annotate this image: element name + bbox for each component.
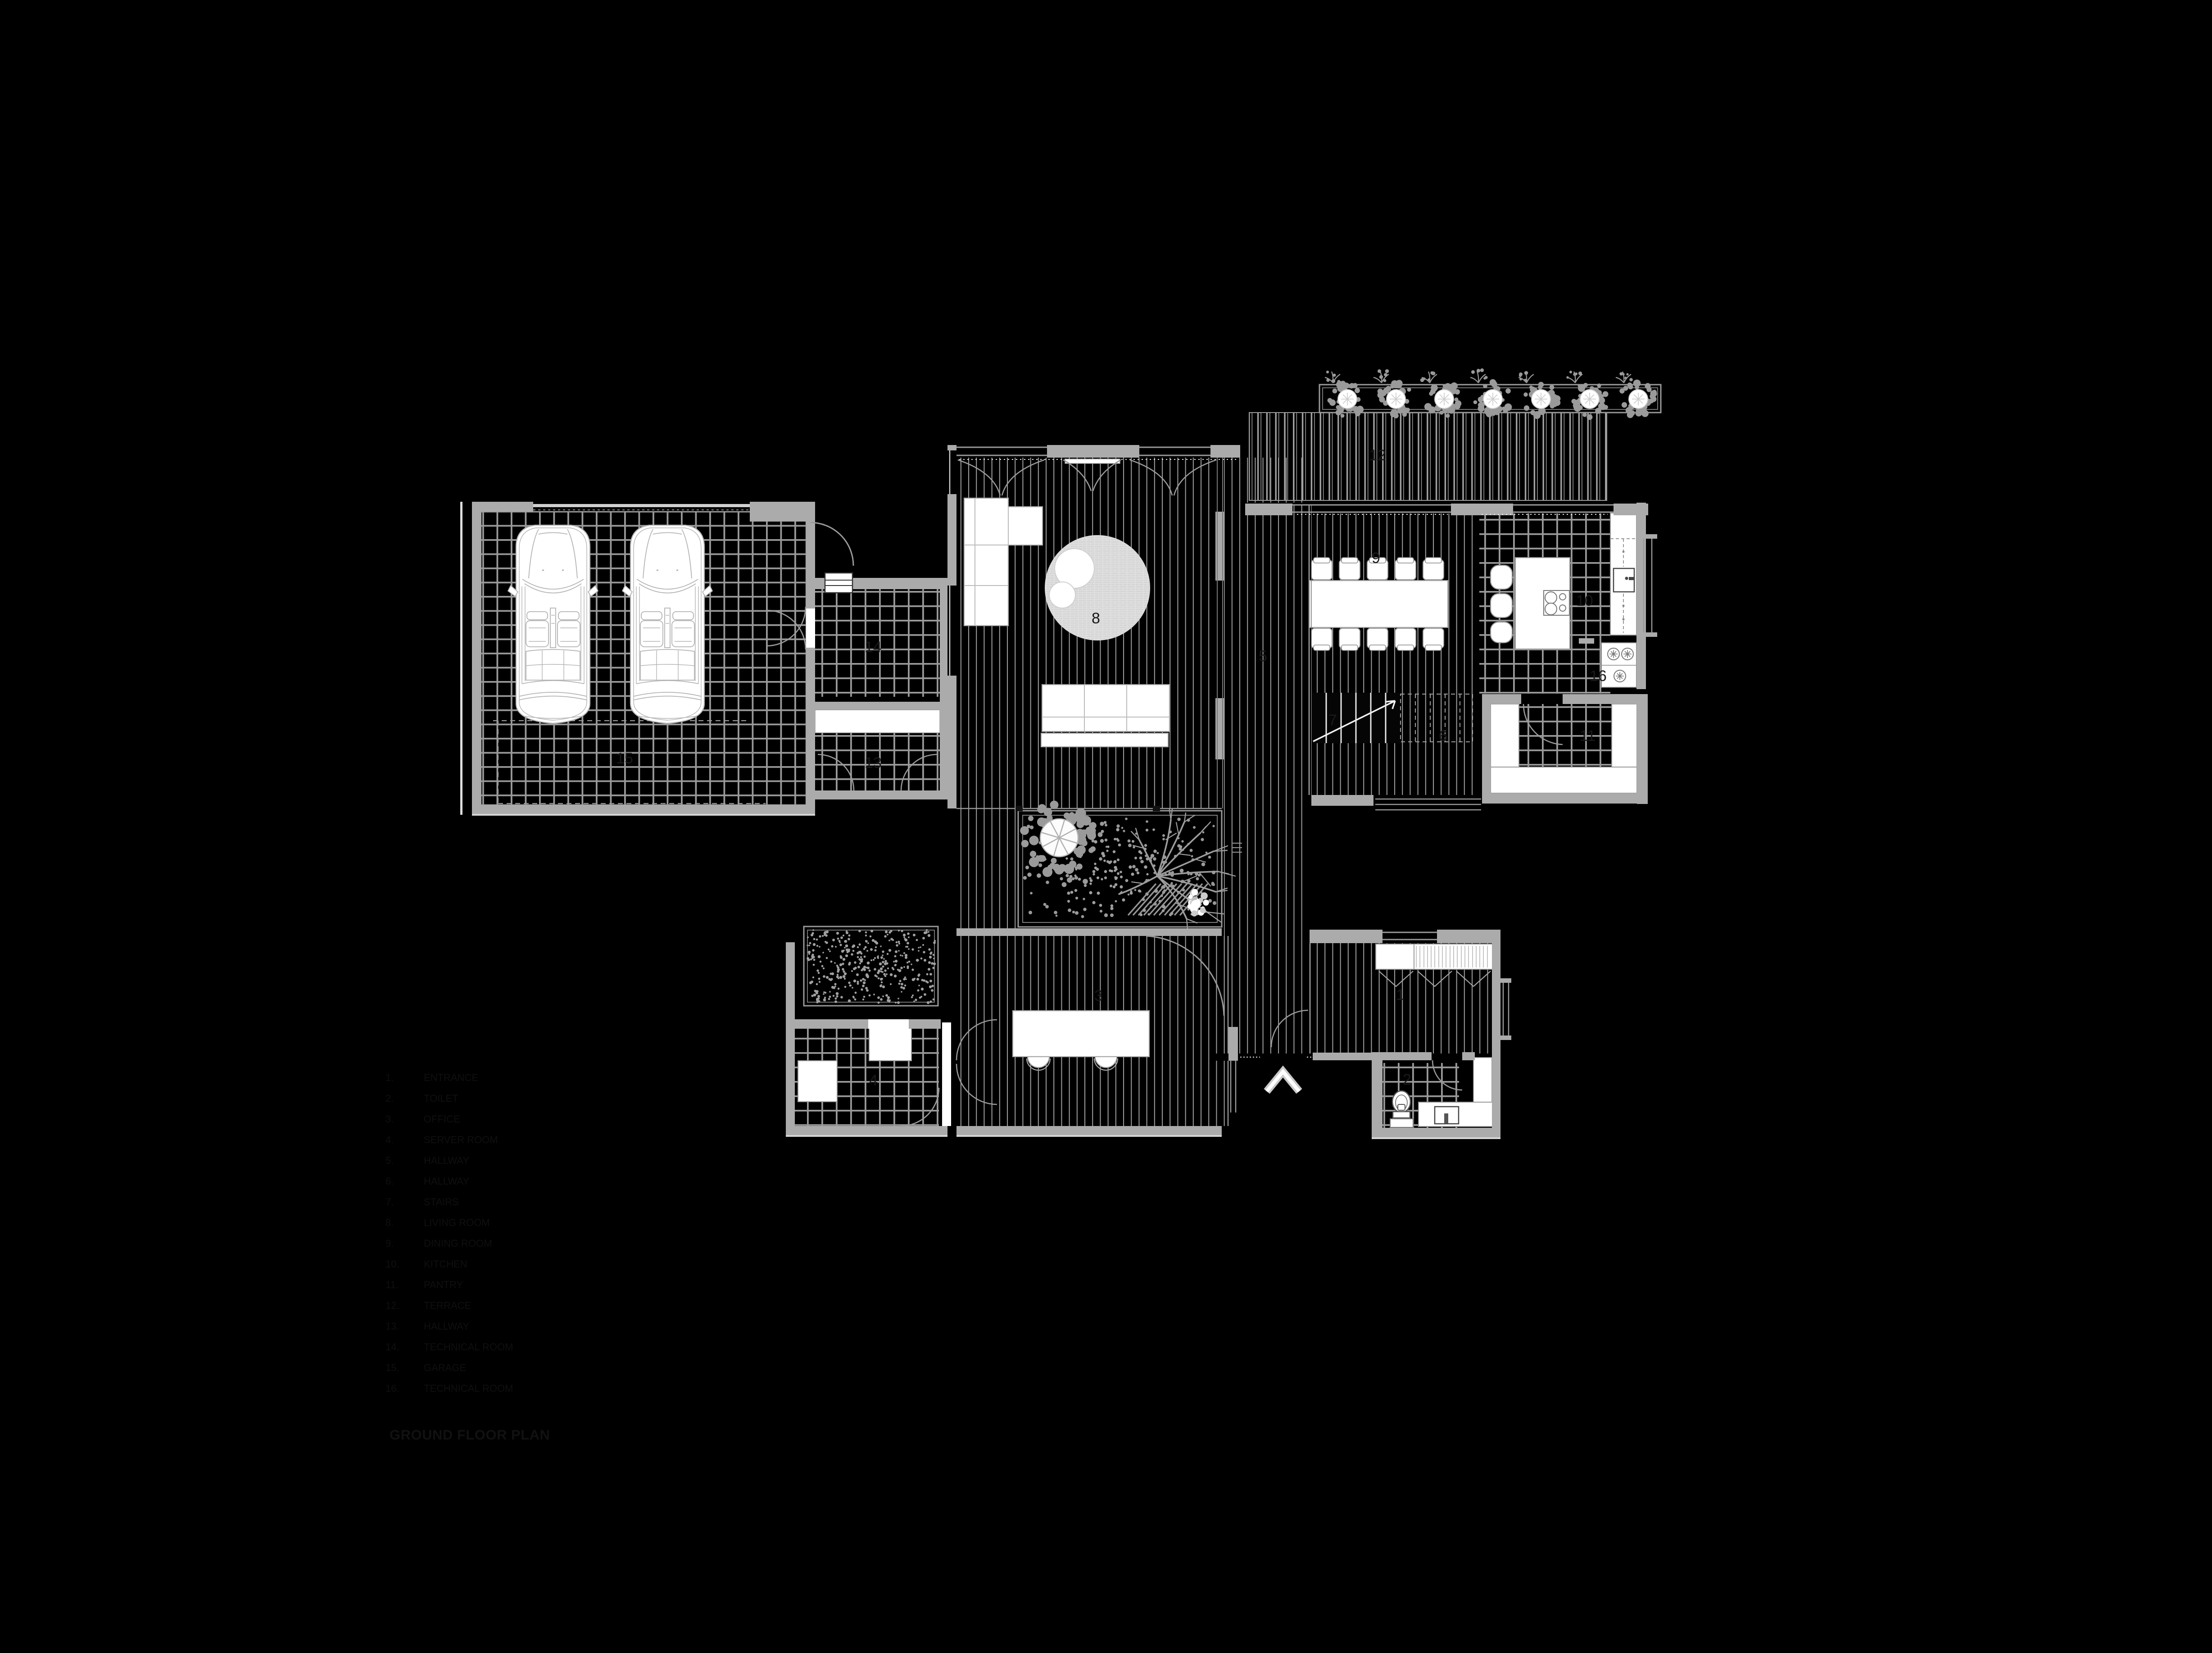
svg-text:14.: 14. [385, 1341, 399, 1353]
svg-text:HALLWAY: HALLWAY [424, 1155, 469, 1166]
svg-text:5.: 5. [385, 1155, 394, 1166]
svg-text:9.: 9. [385, 1238, 394, 1249]
svg-text:ENTRANCE: ENTRANCE [424, 1072, 478, 1083]
svg-text:STAIRS: STAIRS [424, 1196, 459, 1208]
svg-text:1: 1 [1396, 986, 1405, 1004]
svg-text:10: 10 [1576, 592, 1593, 609]
svg-text:TERRACE: TERRACE [424, 1300, 471, 1311]
svg-text:3: 3 [1094, 987, 1103, 1004]
svg-text:6.: 6. [385, 1176, 394, 1187]
svg-text:2.: 2. [385, 1093, 394, 1104]
svg-text:10.: 10. [385, 1258, 399, 1270]
svg-text:6: 6 [1439, 727, 1447, 745]
svg-text:11.: 11. [385, 1279, 399, 1290]
svg-text:9: 9 [1372, 549, 1380, 567]
svg-text:5: 5 [1259, 648, 1267, 665]
svg-text:12.: 12. [385, 1300, 399, 1311]
svg-text:HALLWAY: HALLWAY [424, 1176, 469, 1187]
svg-text:DINING ROOM: DINING ROOM [424, 1238, 492, 1249]
svg-text:8.: 8. [385, 1217, 394, 1228]
svg-text:15.: 15. [385, 1362, 399, 1373]
svg-text:HALLWAY: HALLWAY [424, 1321, 469, 1332]
svg-text:7.: 7. [385, 1196, 394, 1208]
svg-text:2: 2 [1403, 1071, 1411, 1088]
svg-text:3.: 3. [385, 1113, 394, 1125]
svg-text:11: 11 [1580, 727, 1596, 745]
svg-text:12: 12 [1369, 447, 1386, 464]
svg-text:LIVING ROOM: LIVING ROOM [424, 1217, 490, 1228]
svg-text:TECHNICAL ROOM: TECHNICAL ROOM [424, 1341, 513, 1353]
svg-text:TOILET: TOILET [424, 1093, 458, 1104]
svg-text:13: 13 [865, 754, 882, 772]
svg-text:KITCHEN: KITCHEN [424, 1258, 467, 1270]
svg-text:TECHNICAL ROOM: TECHNICAL ROOM [424, 1383, 513, 1394]
svg-text:16: 16 [1590, 668, 1607, 685]
svg-text:OFFICE: OFFICE [424, 1113, 460, 1125]
svg-text:15: 15 [616, 750, 633, 767]
svg-text:SERVER ROOM: SERVER ROOM [424, 1134, 498, 1145]
svg-text:14: 14 [865, 639, 882, 656]
svg-text:PANTRY: PANTRY [424, 1279, 463, 1290]
svg-text:4: 4 [869, 1072, 878, 1089]
svg-text:GARAGE: GARAGE [424, 1362, 466, 1373]
svg-text:1.: 1. [385, 1072, 394, 1083]
svg-text:16.: 16. [385, 1383, 399, 1394]
svg-text:8: 8 [1092, 610, 1100, 627]
svg-text:4.: 4. [385, 1134, 394, 1145]
svg-text:GROUND FLOOR PLAN: GROUND FLOOR PLAN [390, 1427, 550, 1443]
svg-text:13.: 13. [385, 1321, 399, 1332]
svg-text:7: 7 [1328, 712, 1337, 729]
